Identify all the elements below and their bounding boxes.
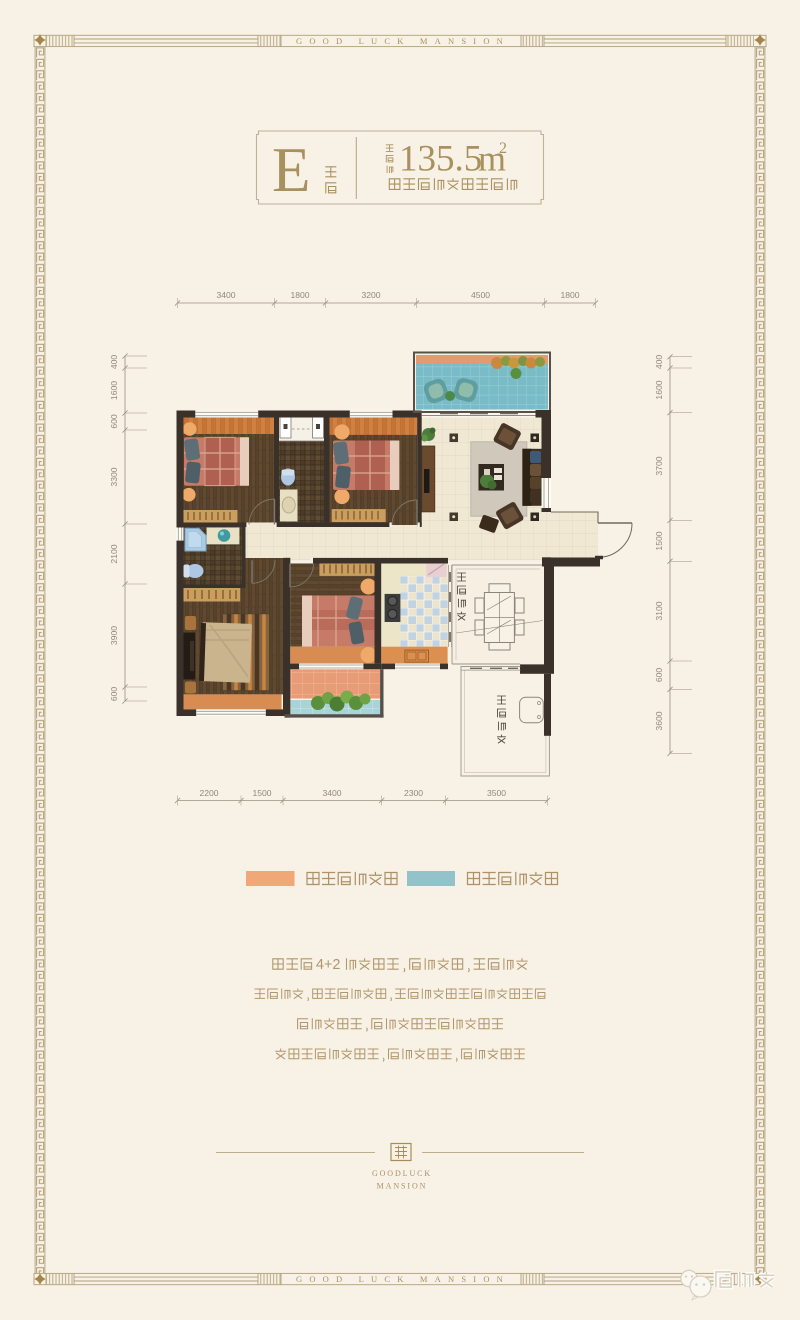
svg-text:1600: 1600 [654, 380, 664, 399]
svg-text:600: 600 [109, 414, 119, 429]
svg-text:3600: 3600 [654, 711, 664, 730]
svg-text:3400: 3400 [322, 788, 341, 798]
svg-text:3200: 3200 [361, 290, 380, 300]
svg-text:1800: 1800 [560, 290, 579, 300]
svg-text:MANSION: MANSION [377, 1182, 428, 1191]
svg-text:1600: 1600 [109, 381, 119, 400]
svg-text:2: 2 [499, 140, 507, 157]
svg-text:3900: 3900 [109, 626, 119, 645]
svg-text:400: 400 [109, 355, 119, 370]
svg-text:2200: 2200 [199, 788, 218, 798]
svg-text:E: E [272, 135, 310, 205]
svg-text:135.5: 135.5 [399, 139, 482, 180]
svg-text:GOOD LUCK MANSION: GOOD LUCK MANSION [296, 36, 510, 46]
svg-text:3100: 3100 [654, 601, 664, 620]
svg-text:GOODLUCK: GOODLUCK [372, 1169, 432, 1178]
svg-text:1500: 1500 [252, 788, 271, 798]
svg-text:4500: 4500 [471, 290, 490, 300]
svg-text:4+2: 4+2 [316, 957, 341, 973]
svg-text:600: 600 [109, 687, 119, 702]
svg-text:400: 400 [654, 355, 664, 370]
svg-text:GOOD LUCK MANSION: GOOD LUCK MANSION [296, 1274, 510, 1284]
svg-text:2100: 2100 [109, 544, 119, 563]
svg-text:3400: 3400 [216, 290, 235, 300]
svg-text:600: 600 [654, 668, 664, 683]
svg-text:1500: 1500 [654, 531, 664, 550]
svg-text:1800: 1800 [290, 290, 309, 300]
svg-text:2300: 2300 [404, 788, 423, 798]
svg-text:3500: 3500 [487, 788, 506, 798]
svg-text:3700: 3700 [654, 456, 664, 475]
svg-text:3300: 3300 [109, 467, 119, 486]
